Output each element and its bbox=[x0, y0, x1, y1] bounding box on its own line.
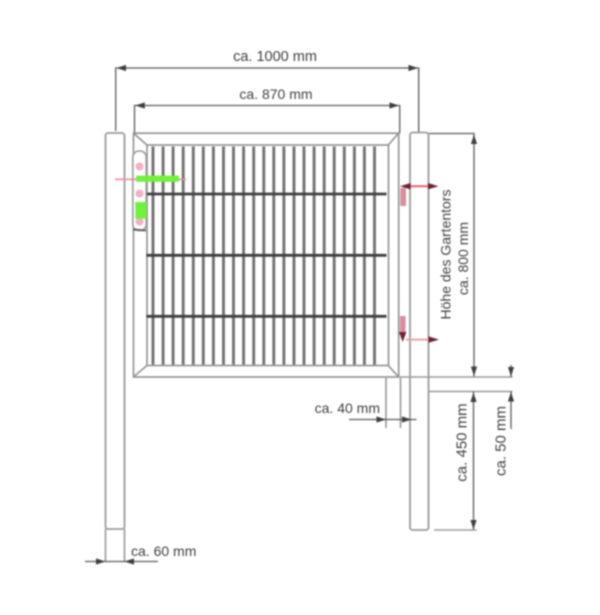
svg-text:ca. 1000 mm: ca. 1000 mm bbox=[233, 49, 317, 65]
svg-text:ca. 800 mm: ca. 800 mm bbox=[455, 222, 471, 295]
svg-text:ca. 50 mm: ca. 50 mm bbox=[493, 406, 510, 476]
svg-text:ca. 40 mm: ca. 40 mm bbox=[315, 400, 380, 416]
svg-text:ca. 450 mm: ca. 450 mm bbox=[454, 403, 471, 481]
svg-text:ca. 60 mm: ca. 60 mm bbox=[131, 543, 196, 559]
svg-text:Höhe des Gartentors: Höhe des Gartentors bbox=[438, 190, 454, 320]
svg-text:ca. 870 mm: ca. 870 mm bbox=[239, 86, 312, 102]
